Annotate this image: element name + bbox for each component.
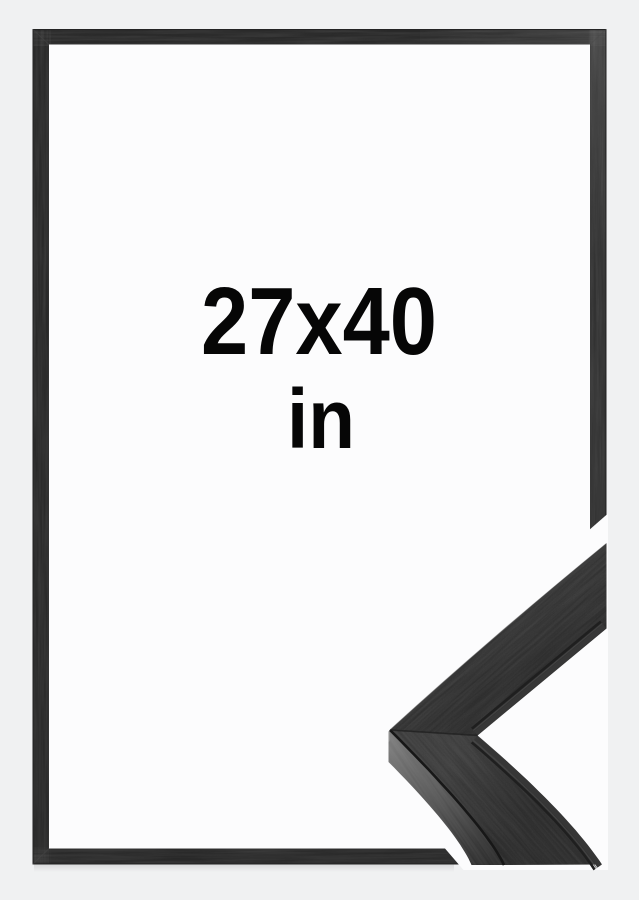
svg-text:27x40: 27x40 bbox=[201, 268, 437, 375]
svg-text:in: in bbox=[287, 372, 355, 466]
